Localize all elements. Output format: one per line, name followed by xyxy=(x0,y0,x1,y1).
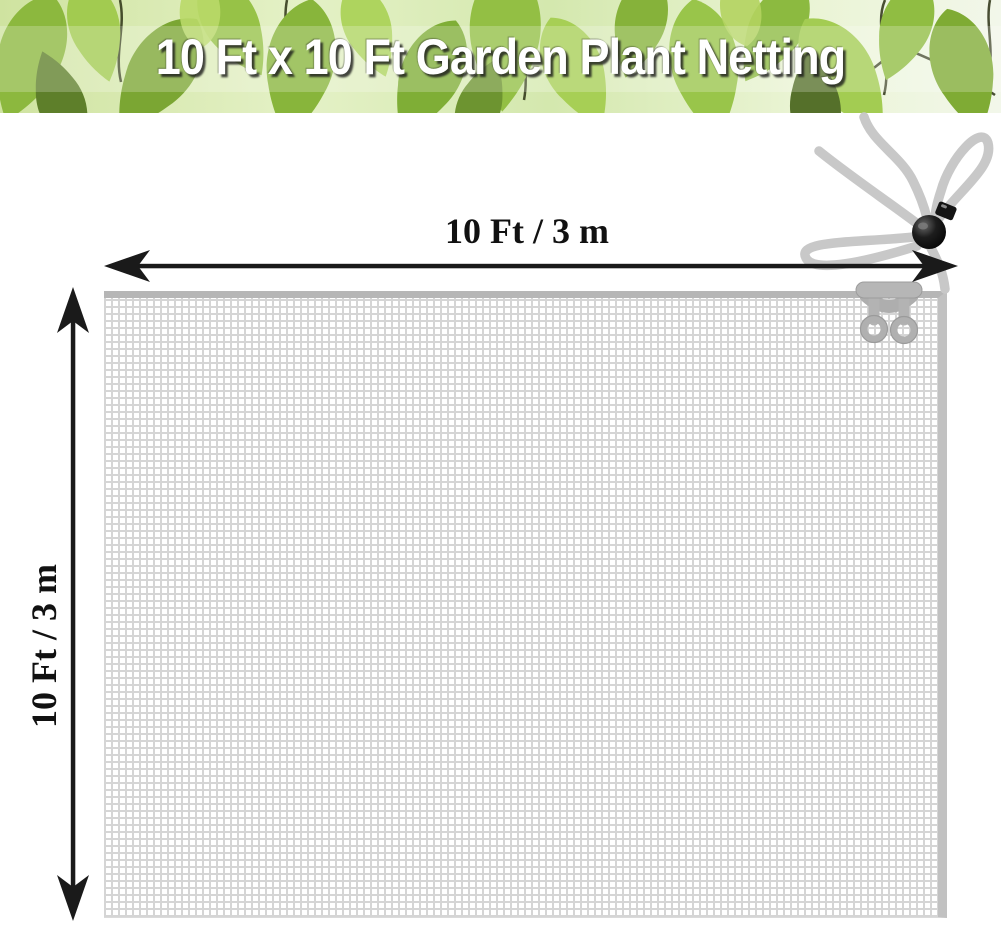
height-dimension-label: 10 Ft / 3 m xyxy=(23,564,65,728)
tie-rope-bow-icon xyxy=(805,117,989,289)
cord-lock-toggle-icon xyxy=(912,201,957,249)
double-headed-horizontal-arrow xyxy=(104,250,958,282)
product-image: 10 Ft x 10 Ft Garden Plant Netting xyxy=(0,0,1001,925)
header-banner: 10 Ft x 10 Ft Garden Plant Netting xyxy=(0,0,1001,113)
net-mesh xyxy=(104,291,947,918)
width-dimension-label: 10 Ft / 3 m xyxy=(377,210,677,252)
page-title: 10 Ft x 10 Ft Garden Plant Netting xyxy=(50,0,951,113)
